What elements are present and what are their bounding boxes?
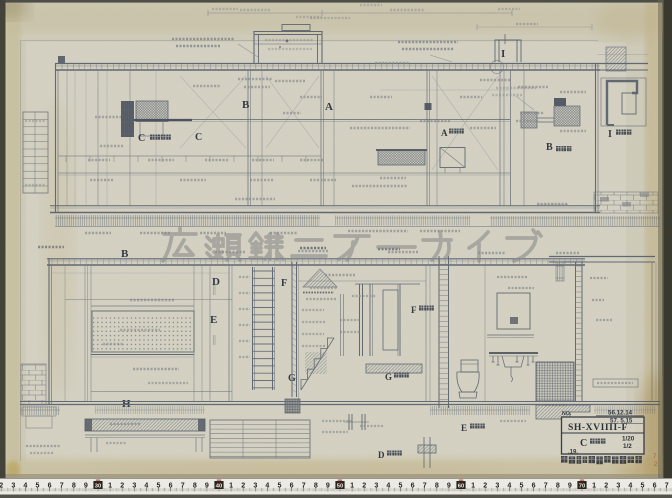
svg-text:3: 3 — [11, 482, 15, 490]
svg-text:1: 1 — [471, 482, 475, 490]
svg-text:7: 7 — [302, 482, 306, 490]
svg-text:D: D — [212, 276, 220, 288]
svg-text:7: 7 — [544, 482, 548, 490]
svg-text:4: 4 — [628, 482, 632, 490]
svg-text:3: 3 — [374, 482, 378, 490]
svg-text:6: 6 — [169, 482, 173, 490]
svg-text:5: 5 — [520, 482, 524, 490]
svg-text:.19.: .19. — [568, 450, 578, 456]
svg-text:2: 2 — [483, 482, 487, 490]
svg-text:D: D — [378, 450, 385, 460]
svg-text:3: 3 — [495, 482, 499, 490]
svg-text:E: E — [210, 314, 217, 326]
svg-text:C: C — [580, 438, 587, 449]
svg-text:B: B — [242, 99, 250, 111]
svg-text:6: 6 — [411, 482, 415, 490]
svg-text:1: 1 — [350, 482, 354, 490]
svg-text:9: 9 — [326, 482, 330, 490]
svg-text:9: 9 — [447, 482, 451, 490]
svg-text:30: 30 — [95, 484, 101, 490]
svg-text:9: 9 — [568, 482, 572, 490]
svg-text:7: 7 — [60, 482, 64, 490]
svg-text:2: 2 — [120, 482, 124, 490]
svg-text:C: C — [138, 133, 145, 144]
svg-text:2: 2 — [654, 461, 658, 468]
svg-text:I: I — [501, 48, 505, 60]
svg-text:F: F — [281, 278, 287, 289]
svg-text:E: E — [461, 423, 467, 433]
svg-text:9: 9 — [84, 482, 88, 490]
svg-text:5: 5 — [278, 482, 282, 490]
svg-text:60: 60 — [458, 484, 464, 490]
svg-text:A: A — [441, 128, 448, 138]
svg-text:5: 5 — [157, 482, 161, 490]
svg-text:6: 6 — [532, 482, 536, 490]
svg-text:1: 1 — [592, 482, 596, 490]
svg-text:5: 5 — [641, 482, 645, 490]
svg-text:NO.: NO. — [562, 411, 572, 417]
svg-text:I: I — [608, 129, 612, 140]
svg-text:F: F — [411, 305, 417, 315]
svg-text:G: G — [385, 372, 392, 382]
svg-text:1: 1 — [108, 482, 112, 490]
svg-text:2: 2 — [0, 482, 3, 490]
svg-text:4: 4 — [144, 482, 148, 490]
svg-text:7: 7 — [181, 482, 185, 490]
svg-text:A: A — [325, 101, 333, 113]
svg-text:9: 9 — [205, 482, 209, 490]
svg-text:8: 8 — [435, 482, 439, 490]
svg-text:3: 3 — [616, 482, 620, 490]
svg-text:6: 6 — [48, 482, 52, 490]
svg-text:7: 7 — [423, 482, 427, 490]
svg-text:50: 50 — [337, 484, 343, 490]
svg-text:1: 1 — [229, 482, 233, 490]
svg-text:7: 7 — [653, 453, 657, 460]
svg-text:7: 7 — [665, 482, 669, 490]
svg-text:1/20: 1/20 — [622, 436, 635, 443]
svg-text:C: C — [195, 132, 202, 143]
svg-text:2: 2 — [362, 482, 366, 490]
svg-text:8: 8 — [193, 482, 197, 490]
svg-text:SH-XVIIII-F: SH-XVIIII-F — [568, 422, 628, 433]
svg-text:4: 4 — [23, 482, 27, 490]
svg-text:3: 3 — [253, 482, 257, 490]
svg-text:2: 2 — [241, 482, 245, 490]
svg-text:1/2: 1/2 — [623, 443, 632, 450]
svg-text:4: 4 — [507, 482, 511, 490]
svg-text:6: 6 — [290, 482, 294, 490]
svg-text:8: 8 — [556, 482, 560, 490]
svg-text:B: B — [546, 142, 553, 153]
svg-text:2: 2 — [604, 482, 608, 490]
svg-text:40: 40 — [216, 484, 222, 490]
svg-text:8: 8 — [314, 482, 318, 490]
svg-text:5: 5 — [399, 482, 403, 490]
svg-text:6: 6 — [653, 482, 657, 490]
svg-text:5: 5 — [36, 482, 40, 490]
svg-text:70: 70 — [579, 484, 585, 490]
svg-text:8: 8 — [72, 482, 76, 490]
svg-text:56.12.14: 56.12.14 — [608, 410, 633, 417]
svg-text:3: 3 — [132, 482, 136, 490]
svg-text:4: 4 — [265, 482, 269, 490]
svg-text:4: 4 — [386, 482, 390, 490]
